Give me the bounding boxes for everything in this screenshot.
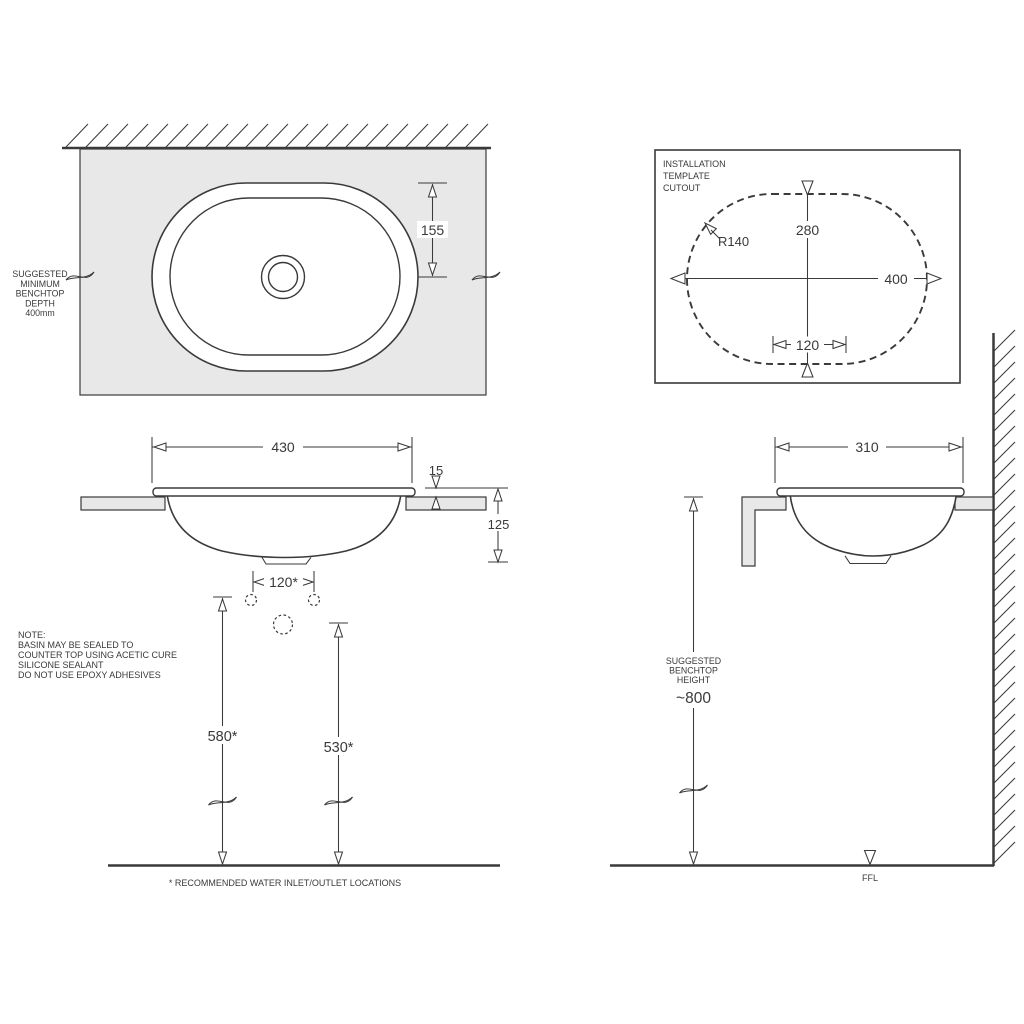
height-note-1: SUGGESTED (666, 656, 721, 666)
dim-430: 430 (152, 437, 412, 483)
wall-hatch-top (66, 124, 488, 147)
drawing-svg: 155 SUGGESTED MINIMUM BENCHTOP DEPTH 400… (0, 0, 1024, 1024)
front-elevation: 430 15 125 120* (18, 437, 514, 888)
template-title-3: CUTOUT (663, 183, 701, 193)
dim-530-label: 530* (324, 740, 354, 756)
waste-trap-side (845, 556, 891, 564)
benchtop-slab-right (406, 497, 486, 510)
svg-text:DO NOT USE EPOXY ADHESIVES: DO NOT USE EPOXY ADHESIVES (18, 670, 161, 680)
dim-155-label: 155 (421, 222, 445, 238)
template-title-2: TEMPLATE (663, 171, 710, 181)
wall-hatch-right (993, 330, 1015, 864)
water-inlet-left (246, 595, 257, 606)
height-note-3: HEIGHT (677, 675, 711, 685)
dim-15-label: 15 (429, 463, 443, 478)
dim-800: SUGGESTED BENCHTOP HEIGHT ~800 (658, 497, 729, 864)
svg-text:BASIN MAY BE SEALED TO: BASIN MAY BE SEALED TO (18, 640, 133, 650)
r140-label: R140 (718, 234, 749, 249)
svg-text:BENCHTOP: BENCHTOP (16, 289, 65, 299)
ffl-triangle-icon (865, 851, 876, 865)
basin-rim-front (153, 488, 415, 496)
benchtop-slab-left (81, 497, 165, 510)
dim-580: 580* (202, 597, 243, 864)
dim-430-label: 430 (271, 439, 295, 455)
benchtop-depth-note: SUGGESTED MINIMUM BENCHTOP DEPTH 400mm (12, 269, 67, 318)
svg-text:SUGGESTED: SUGGESTED (12, 269, 67, 279)
basin-bowl-front (167, 494, 401, 558)
dim-120-inlets: 120* (253, 571, 314, 592)
height-note-2: BENCHTOP (669, 666, 718, 676)
benchtop-strip-wall (955, 497, 993, 510)
svg-text:400mm: 400mm (25, 308, 54, 318)
dim-310-label: 310 (855, 439, 879, 455)
drain-inner-circle (269, 263, 298, 292)
plan-view: 155 SUGGESTED MINIMUM BENCHTOP DEPTH 400… (12, 124, 500, 395)
dim-310: 310 (775, 437, 963, 483)
dim-125: 125 (483, 489, 514, 562)
svg-text:DEPTH: DEPTH (25, 298, 55, 308)
dim-580-label: 580* (208, 729, 238, 745)
footnote: * RECOMMENDED WATER INLET/OUTLET LOCATIO… (169, 878, 401, 888)
waste-outlet-location (274, 615, 293, 634)
water-inlet-right (309, 595, 320, 606)
basin-rim-side (777, 488, 964, 496)
template-title-1: INSTALLATION (663, 159, 726, 169)
dim-800-label: ~800 (676, 690, 711, 707)
dim-120-label: 120 (796, 337, 820, 353)
svg-text:MINIMUM: MINIMUM (20, 279, 60, 289)
basin-installation-drawing: 155 SUGGESTED MINIMUM BENCHTOP DEPTH 400… (0, 0, 1024, 1024)
ffl-label: FFL (862, 873, 878, 883)
installation-template: INSTALLATION TEMPLATE CUTOUT 280 400 120… (655, 150, 960, 383)
svg-text:NOTE:: NOTE: (18, 630, 46, 640)
waste-trap-front (262, 557, 311, 564)
benchtop-section-left (742, 497, 786, 566)
basin-bowl-side (790, 494, 957, 556)
side-elevation: 310 SUGGESTED BENCHTOP HEIGHT ~800 FFL (610, 330, 1015, 883)
svg-text:COUNTER TOP USING ACETIC CURE: COUNTER TOP USING ACETIC CURE (18, 650, 177, 660)
dim-530: 530* (318, 623, 359, 864)
svg-text:SILICONE SEALANT: SILICONE SEALANT (18, 660, 104, 670)
dim-125-label: 125 (488, 517, 510, 532)
dim-400-label: 400 (884, 271, 908, 287)
dim-120-inlet-label: 120* (269, 574, 298, 590)
dim-280-label: 280 (796, 222, 820, 238)
sealant-note: NOTE: BASIN MAY BE SEALED TO COUNTER TOP… (18, 630, 177, 680)
